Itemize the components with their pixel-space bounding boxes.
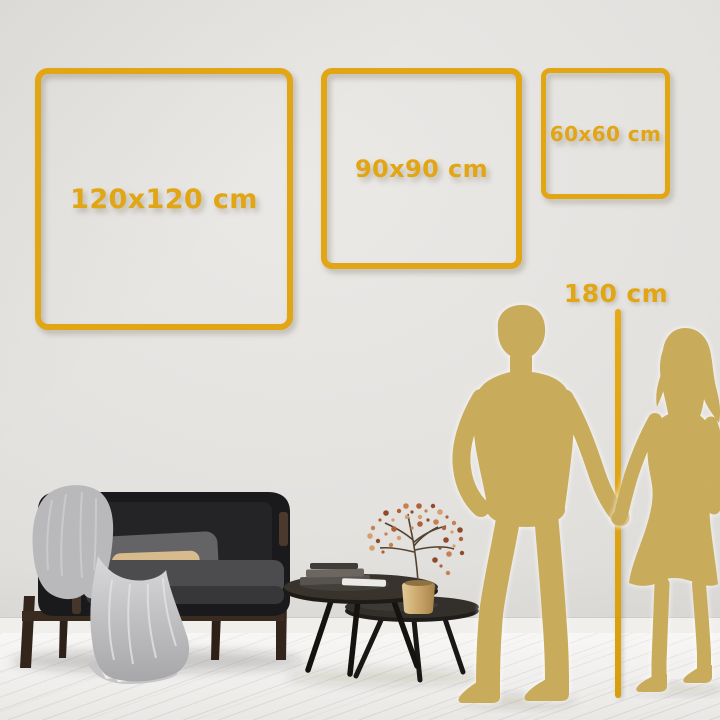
dried-branch-stems bbox=[380, 514, 454, 582]
blossom-dot bbox=[433, 519, 439, 525]
blossom-dot bbox=[391, 526, 397, 532]
room-scene bbox=[0, 0, 720, 720]
blossom-dot bbox=[367, 533, 373, 539]
blossom-dot bbox=[431, 504, 435, 508]
blossom-dot bbox=[460, 551, 464, 555]
sofa-arm-rail-right bbox=[279, 512, 288, 546]
blossom-dot bbox=[442, 526, 446, 530]
blossom-dot bbox=[452, 544, 455, 547]
blossom-dot bbox=[426, 518, 429, 521]
blossom-dot bbox=[378, 518, 381, 521]
woman-right-leg bbox=[699, 584, 704, 671]
blossom-dot bbox=[446, 571, 450, 575]
gold-vase bbox=[402, 582, 435, 614]
blossom-dot bbox=[459, 537, 463, 541]
blossom-dot bbox=[410, 510, 413, 513]
woman-head bbox=[665, 334, 705, 380]
blossom-dot bbox=[438, 546, 441, 549]
blossom-dot bbox=[443, 537, 449, 543]
table-shadow bbox=[286, 669, 486, 685]
blossom-dot bbox=[417, 521, 423, 527]
blossom-dot bbox=[369, 545, 375, 551]
blossom-dot bbox=[383, 510, 389, 516]
woman-hand bbox=[612, 511, 627, 526]
woman-right-arm bbox=[711, 423, 718, 508]
blossom-dot bbox=[457, 527, 463, 533]
blossom-dot bbox=[437, 509, 443, 515]
blossom-dot bbox=[403, 503, 409, 509]
woman-left-leg bbox=[659, 584, 662, 680]
book-middle bbox=[306, 568, 364, 577]
book-top bbox=[310, 563, 358, 569]
blossom-dot bbox=[410, 526, 413, 529]
man-silhouette bbox=[459, 305, 630, 703]
size-guide-image: 120x120 cm 90x90 cm 60x60 cm 180 cm bbox=[0, 0, 720, 720]
man-right-foot bbox=[525, 675, 569, 701]
blossom-dot bbox=[418, 515, 422, 519]
blossom-dot bbox=[397, 536, 401, 540]
blossom-dot bbox=[439, 564, 442, 567]
blossom-dot bbox=[389, 543, 393, 547]
man-left-leg bbox=[488, 514, 509, 684]
gold-vase-rim bbox=[405, 580, 433, 586]
blossom-dot bbox=[384, 532, 387, 535]
blossom-dot bbox=[405, 515, 409, 519]
blossom-dot bbox=[446, 551, 452, 557]
blossom-dot bbox=[424, 509, 427, 512]
blossom-dot bbox=[397, 509, 401, 513]
blossom-dot bbox=[371, 526, 375, 530]
blossom-dot bbox=[450, 530, 453, 533]
man-right-arm bbox=[565, 398, 617, 513]
blossom-dot bbox=[432, 557, 438, 563]
blossom-dot bbox=[416, 503, 422, 509]
blossom-dot bbox=[381, 550, 384, 553]
woman-silhouette bbox=[612, 328, 720, 692]
blossom-dot bbox=[376, 539, 380, 543]
blossom-dot bbox=[391, 518, 394, 521]
blossom-dot bbox=[445, 515, 448, 518]
blossom-dot bbox=[452, 521, 456, 525]
man-right-leg bbox=[546, 514, 557, 680]
